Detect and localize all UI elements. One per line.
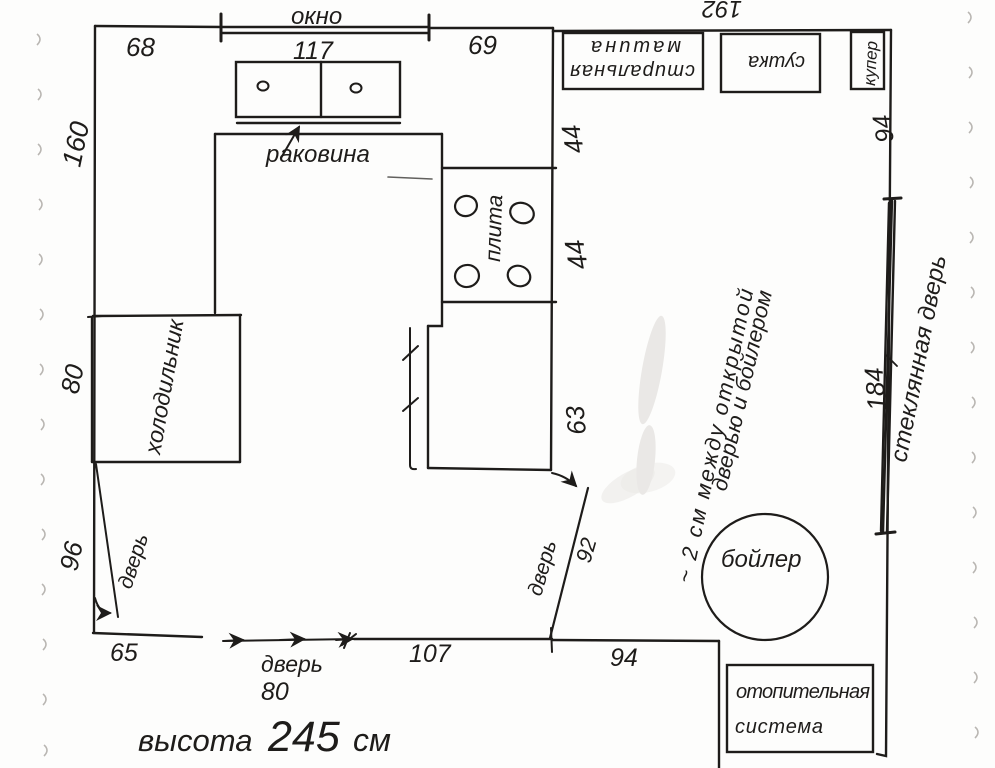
svg-text:отопительная: отопительная	[736, 681, 870, 703]
svg-text:192: 192	[702, 0, 742, 22]
svg-text:сушка: сушка	[748, 51, 805, 73]
svg-text:машина: машина	[591, 36, 681, 58]
svg-text:94: 94	[610, 644, 638, 672]
svg-text:92: 92	[571, 535, 602, 565]
svg-text:44: 44	[555, 122, 590, 156]
svg-text:107: 107	[409, 640, 452, 668]
svg-text:система: система	[735, 716, 823, 738]
svg-text:44: 44	[559, 237, 594, 272]
svg-text:дверь: дверь	[114, 531, 153, 592]
svg-text:окно: окно	[291, 3, 342, 30]
svg-text:68: 68	[126, 32, 155, 62]
svg-text:купер: купер	[860, 40, 881, 86]
svg-text:дверь: дверь	[524, 538, 562, 599]
svg-text:184: 184	[858, 366, 892, 412]
svg-text:94: 94	[868, 113, 900, 145]
svg-text:65: 65	[110, 639, 138, 667]
svg-text:холодильник: холодильник	[139, 316, 189, 457]
svg-text:бойлер: бойлер	[721, 546, 801, 573]
svg-text:96: 96	[54, 538, 89, 573]
svg-text:дверь: дверь	[261, 651, 323, 677]
svg-text:160: 160	[57, 119, 96, 169]
svg-text:раковина: раковина	[265, 141, 370, 168]
svg-text:80: 80	[261, 678, 289, 706]
svg-text:80: 80	[55, 361, 90, 396]
svg-text:69: 69	[468, 30, 497, 60]
svg-text:стиральная: стиральная	[570, 60, 695, 82]
svg-text:высота245см: высота245см	[138, 713, 391, 761]
svg-text:плита: плита	[480, 194, 507, 262]
svg-text:117: 117	[293, 37, 334, 65]
svg-text:63: 63	[560, 404, 592, 436]
svg-text:стеклянная дверь: стеклянная дверь	[885, 253, 952, 464]
